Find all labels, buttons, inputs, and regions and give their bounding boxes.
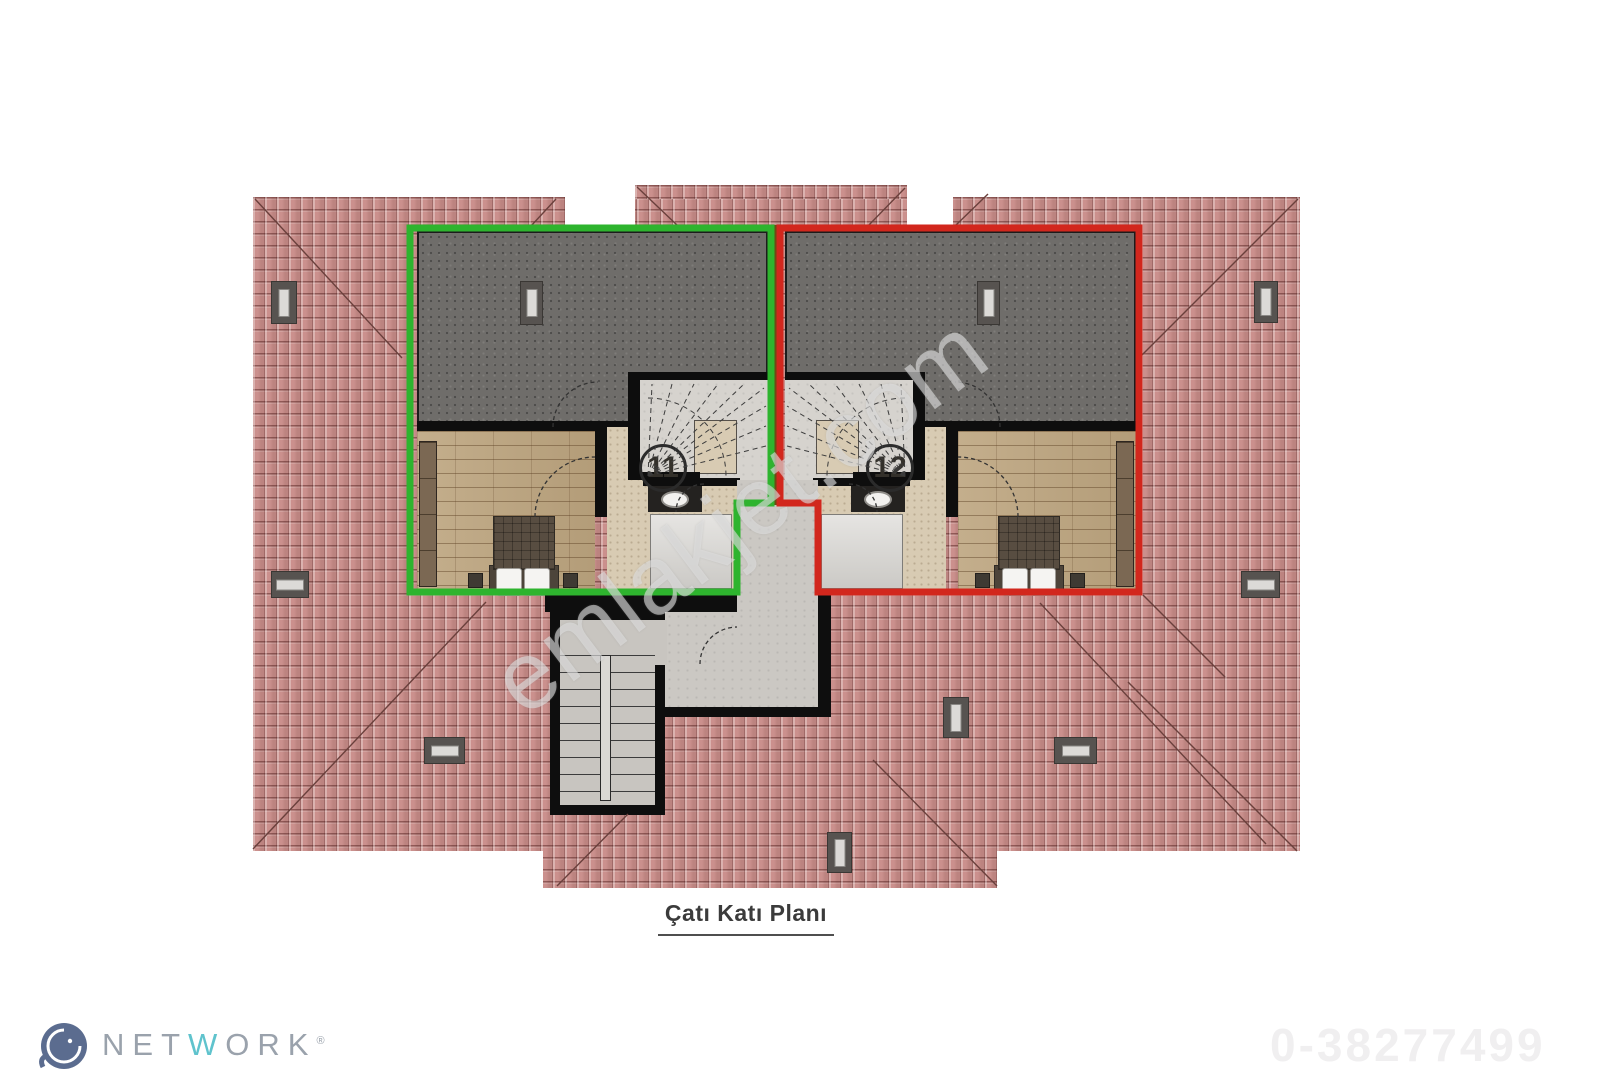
chimney [520, 281, 543, 325]
unit-12-number: 12 [873, 451, 906, 485]
shower-unit-11 [650, 514, 732, 589]
roof-gap [253, 851, 543, 888]
wall [595, 425, 607, 517]
roof-gap [565, 197, 635, 229]
pillow [1002, 568, 1028, 596]
nightstand [468, 573, 483, 588]
stair-newel [816, 420, 859, 474]
bed-duvet [998, 516, 1060, 570]
chimney [1054, 737, 1097, 764]
pillow [524, 568, 550, 596]
chimney [271, 571, 309, 598]
wardrobe [1116, 441, 1134, 587]
nightstand [975, 573, 990, 588]
chimney [424, 737, 465, 764]
brand-logo: NETWORK® [34, 1016, 333, 1070]
registered-mark: ® [316, 1035, 324, 1047]
wall [660, 707, 831, 717]
unit-number-badge: 11 [639, 444, 687, 492]
roof-gap [907, 197, 953, 229]
wall [818, 592, 831, 713]
pillow [496, 568, 522, 596]
brand-wordmark: NETWORK® [102, 1027, 333, 1063]
unit-number-badge: 12 [866, 444, 914, 492]
nightstand [1070, 573, 1085, 588]
stair-stringer [600, 655, 611, 801]
wall [946, 425, 958, 517]
chimney [1254, 281, 1278, 323]
nightstand [563, 573, 578, 588]
chimney [1241, 571, 1280, 598]
roof-gap [997, 851, 1300, 888]
stair-landing [665, 612, 817, 707]
bed-duvet [493, 516, 555, 570]
chimney [977, 281, 1000, 325]
bath-entry-unit-12 [813, 486, 851, 514]
unit-11-number: 11 [647, 451, 679, 485]
page-title: Çatı Katı Planı [658, 900, 834, 936]
brand-letter-w: W [188, 1027, 217, 1062]
stair-newel [694, 420, 737, 474]
listing-reference: 0-38277499 [1270, 1018, 1546, 1070]
sink [661, 491, 689, 508]
stairwell-opening [655, 620, 667, 665]
chimney [827, 832, 852, 873]
sink [864, 491, 892, 508]
pillow [1030, 568, 1056, 596]
wardrobe [419, 441, 437, 587]
elephant-icon [34, 1016, 92, 1070]
chimney [271, 281, 297, 324]
bath-entry-unit-11 [702, 486, 740, 514]
chimney [943, 697, 969, 738]
floor-plan-page: 11 12 [0, 0, 1599, 1070]
roof-dormer [635, 185, 907, 199]
shower-unit-12 [821, 514, 903, 589]
